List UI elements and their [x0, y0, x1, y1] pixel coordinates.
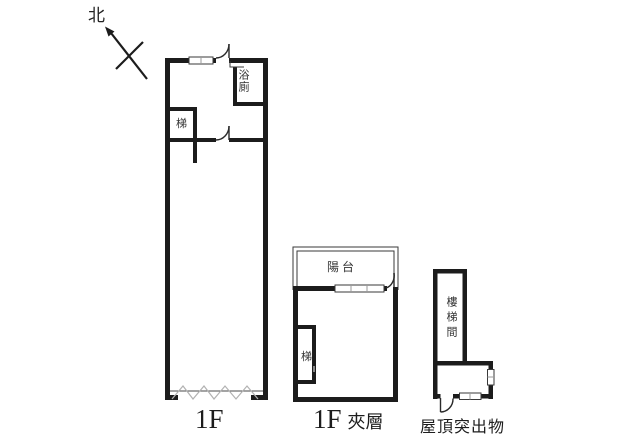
- door: [441, 398, 454, 412]
- stair-label-mezzanine: 梯: [301, 352, 313, 363]
- entry-zigzag: [172, 386, 258, 399]
- window: [488, 370, 495, 386]
- plan-mezzanine-title-prefix: 1F: [313, 406, 342, 433]
- plan-roof-title: 屋頂突出物: [420, 420, 505, 436]
- north-label: 北: [88, 7, 105, 24]
- wall: [433, 269, 493, 399]
- floor-plan-drawing: [0, 0, 640, 447]
- window: [335, 285, 384, 292]
- door: [216, 44, 229, 58]
- door: [216, 126, 229, 140]
- stairwell-label: 樓梯間: [445, 296, 456, 341]
- window: [189, 57, 213, 64]
- floor-plan-roof: [433, 269, 494, 412]
- window: [460, 393, 482, 400]
- floor-plan-1f: [165, 44, 268, 400]
- plan-1f-title: 1F: [195, 406, 224, 433]
- floor-plan-sheet: 北 浴廁 梯 1F 陽台 梯 1F 夾層 樓梯間 屋頂突出物: [0, 0, 640, 447]
- plan-mezzanine-title-suffix: 夾層: [348, 413, 384, 431]
- stair-room-walls: [165, 107, 268, 163]
- stair-label-1f: 梯: [176, 119, 188, 130]
- door: [386, 273, 394, 288]
- balcony-label: 陽台: [327, 261, 357, 273]
- plan-mezzanine-title: 1F 夾層: [313, 406, 384, 433]
- north-arrow-icon: [105, 27, 147, 80]
- bathroom-label: 浴廁: [237, 69, 248, 93]
- wall: [293, 286, 398, 402]
